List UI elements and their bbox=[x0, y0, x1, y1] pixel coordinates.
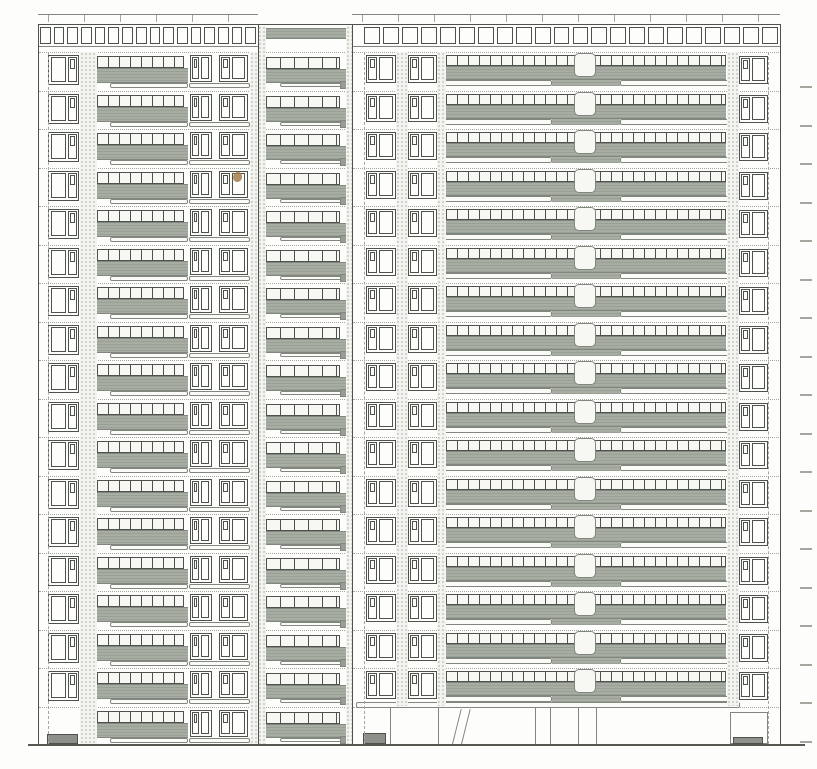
balcony-slab bbox=[620, 465, 737, 471]
window-casement-pane bbox=[194, 59, 197, 68]
core-pier bbox=[574, 169, 596, 193]
balcony-slab bbox=[280, 237, 342, 241]
floor-line bbox=[259, 360, 351, 361]
parapet-panel bbox=[150, 27, 161, 44]
roof-line bbox=[38, 24, 258, 25]
floor-line bbox=[39, 591, 257, 592]
balcony-slab bbox=[443, 619, 552, 625]
window bbox=[366, 209, 396, 237]
floor-line bbox=[353, 399, 779, 400]
window-casement bbox=[368, 365, 377, 388]
balcony-railing bbox=[266, 558, 340, 570]
window bbox=[190, 402, 212, 429]
window bbox=[408, 633, 437, 661]
window-pane bbox=[201, 173, 209, 195]
window bbox=[366, 556, 396, 584]
balcony-slab bbox=[620, 234, 737, 240]
window-casement bbox=[368, 519, 377, 542]
balcony-band bbox=[97, 530, 188, 545]
window-casement bbox=[68, 288, 77, 313]
window-casement bbox=[68, 134, 77, 159]
level-tick bbox=[800, 664, 812, 666]
balcony-railing bbox=[97, 56, 184, 68]
ground-floor-mullion bbox=[535, 708, 536, 744]
window-casement bbox=[741, 636, 750, 659]
window-casement-pane bbox=[194, 521, 197, 530]
roof-tick bbox=[156, 15, 157, 22]
window-casement bbox=[410, 481, 419, 504]
window bbox=[366, 633, 396, 661]
window-casement-pane bbox=[70, 560, 75, 570]
window-pane bbox=[379, 365, 393, 388]
balcony-band bbox=[264, 570, 346, 584]
balcony-band bbox=[264, 223, 346, 237]
window-casement bbox=[192, 481, 199, 503]
window bbox=[219, 94, 248, 121]
window-casement bbox=[192, 635, 199, 657]
window-casement bbox=[368, 211, 377, 234]
window bbox=[219, 479, 248, 506]
roof-tick bbox=[578, 15, 579, 22]
window-pane bbox=[201, 481, 209, 503]
window-casement-pane bbox=[412, 367, 417, 376]
window-casement-pane bbox=[370, 560, 375, 569]
floor-line bbox=[259, 476, 351, 477]
window-casement bbox=[741, 674, 750, 697]
window-pane bbox=[379, 519, 393, 542]
window-casement bbox=[68, 673, 77, 698]
window-casement-pane bbox=[743, 137, 748, 146]
ground-floor-mullion bbox=[438, 708, 439, 744]
balcony-slab bbox=[443, 157, 552, 163]
window-pane bbox=[752, 674, 765, 697]
floor-line bbox=[259, 399, 351, 400]
window-casement bbox=[221, 211, 230, 233]
window bbox=[739, 133, 768, 161]
floor-line bbox=[259, 206, 351, 207]
window-pane bbox=[201, 96, 209, 118]
balcony-slab bbox=[189, 545, 250, 550]
window bbox=[48, 671, 79, 701]
window-pane bbox=[421, 365, 434, 388]
floor-line bbox=[39, 283, 257, 284]
balcony-slab bbox=[620, 504, 737, 510]
window-casement-pane bbox=[223, 483, 228, 492]
balcony-railing bbox=[266, 250, 340, 262]
window-casement bbox=[192, 404, 199, 426]
window-casement bbox=[368, 288, 377, 311]
canopy-stroke bbox=[452, 709, 462, 744]
window-pane bbox=[421, 558, 434, 581]
roof-tick bbox=[192, 15, 193, 22]
window-casement-pane bbox=[194, 290, 197, 299]
window-pane bbox=[201, 134, 209, 156]
balcony-slab bbox=[620, 273, 737, 279]
floor-line bbox=[259, 322, 351, 323]
balcony-slab bbox=[110, 507, 188, 512]
parapet-panel bbox=[629, 27, 645, 44]
balcony-band bbox=[97, 107, 188, 122]
window-casement-pane bbox=[743, 676, 748, 685]
balcony-railing bbox=[266, 211, 340, 223]
window bbox=[48, 55, 79, 85]
window-pane bbox=[51, 404, 66, 429]
floor-line bbox=[353, 630, 779, 631]
balcony-slab bbox=[443, 196, 552, 202]
balcony-band-center bbox=[552, 80, 620, 86]
window-casement bbox=[741, 58, 750, 81]
window bbox=[408, 248, 437, 276]
window-pane bbox=[752, 135, 765, 158]
parapet-panel bbox=[535, 27, 551, 44]
floor-line bbox=[39, 91, 257, 92]
window bbox=[48, 248, 79, 278]
balcony-slab bbox=[443, 504, 552, 510]
window-casement-pane bbox=[194, 213, 197, 222]
entrance-patch bbox=[363, 733, 386, 744]
balcony-slab bbox=[110, 160, 188, 165]
window-casement bbox=[68, 404, 77, 429]
window-pane bbox=[51, 481, 66, 506]
window-casement bbox=[410, 134, 419, 157]
level-tick bbox=[800, 548, 812, 550]
core-pier bbox=[574, 361, 596, 385]
window-casement-pane bbox=[412, 406, 417, 415]
balcony-slab bbox=[189, 699, 250, 704]
balcony-railing bbox=[97, 403, 184, 415]
window-casement-pane bbox=[743, 561, 748, 570]
window-casement bbox=[192, 673, 199, 695]
balcony-slab bbox=[280, 430, 342, 434]
window bbox=[739, 210, 768, 238]
balcony-band-center bbox=[552, 273, 620, 279]
balcony-band bbox=[97, 184, 188, 199]
window-casement bbox=[68, 558, 77, 583]
window bbox=[190, 286, 212, 313]
floor-line bbox=[259, 630, 351, 631]
window-casement-pane bbox=[194, 560, 197, 569]
window-pane bbox=[51, 596, 66, 621]
window-pane bbox=[379, 96, 393, 119]
parapet-panel bbox=[402, 27, 418, 44]
floor-line bbox=[259, 553, 351, 554]
window-casement-pane bbox=[194, 406, 197, 415]
window-casement-pane bbox=[70, 98, 75, 108]
window-casement-pane bbox=[70, 175, 75, 185]
window-casement-pane bbox=[412, 213, 417, 222]
window-casement-pane bbox=[370, 213, 375, 222]
window-casement-pane bbox=[370, 598, 375, 607]
ground-line bbox=[28, 744, 805, 746]
balcony-railing bbox=[97, 634, 184, 646]
window-casement bbox=[68, 365, 77, 390]
stain-speck bbox=[233, 172, 242, 182]
balcony-slab bbox=[280, 661, 342, 665]
balcony-band-center bbox=[552, 196, 620, 202]
balcony-slab bbox=[443, 427, 552, 433]
window-casement-pane bbox=[743, 176, 748, 185]
floor-line bbox=[259, 129, 351, 130]
window-casement bbox=[368, 134, 377, 157]
level-tick bbox=[800, 510, 812, 512]
balcony-band bbox=[264, 339, 346, 353]
window bbox=[366, 132, 396, 160]
floor-line bbox=[353, 245, 779, 246]
balcony-band-center bbox=[552, 619, 620, 625]
window-casement-pane bbox=[70, 59, 75, 69]
floor-line bbox=[39, 245, 257, 246]
window-casement-pane bbox=[743, 407, 748, 416]
window-casement bbox=[741, 366, 750, 389]
balcony-slab bbox=[189, 430, 250, 435]
floor-line bbox=[259, 668, 351, 669]
block-edge-line bbox=[258, 24, 259, 744]
window-casement bbox=[221, 173, 230, 195]
window-casement bbox=[368, 173, 377, 196]
window-pane bbox=[232, 250, 245, 272]
balcony-railing bbox=[266, 288, 340, 300]
floor-line bbox=[353, 283, 779, 284]
balcony-slab bbox=[110, 699, 188, 704]
balcony-slab bbox=[620, 311, 737, 317]
window-casement-pane bbox=[223, 367, 228, 376]
window-pane bbox=[752, 58, 765, 81]
balcony-railing bbox=[266, 635, 340, 647]
window-pane bbox=[752, 597, 765, 620]
block-edge-line bbox=[352, 24, 353, 744]
balcony-band bbox=[97, 376, 188, 391]
window bbox=[190, 55, 212, 82]
window-casement bbox=[741, 135, 750, 158]
balcony-slab bbox=[443, 465, 552, 471]
balcony-band-center bbox=[552, 504, 620, 510]
balcony-railing bbox=[266, 173, 340, 185]
window-casement bbox=[410, 558, 419, 581]
balcony-slab bbox=[189, 276, 250, 281]
balcony-railing bbox=[97, 518, 184, 530]
level-tick bbox=[800, 202, 812, 204]
window bbox=[408, 556, 437, 584]
window bbox=[408, 171, 437, 199]
balcony-railing bbox=[266, 134, 340, 146]
window-casement bbox=[192, 442, 199, 464]
core-pier bbox=[574, 477, 596, 501]
balcony-slab bbox=[280, 122, 342, 126]
window bbox=[190, 94, 212, 121]
window bbox=[408, 209, 437, 237]
balcony-band bbox=[97, 453, 188, 468]
balcony-slab bbox=[443, 658, 552, 664]
window-casement-pane bbox=[743, 253, 748, 262]
window-casement-pane bbox=[370, 98, 375, 107]
window-casement bbox=[741, 443, 750, 466]
floor-line bbox=[39, 553, 257, 554]
parapet-panel bbox=[81, 27, 92, 44]
tower-parapet-band bbox=[258, 28, 348, 39]
window-pane bbox=[232, 519, 245, 541]
window bbox=[190, 633, 212, 660]
window-casement-pane bbox=[412, 329, 417, 338]
balcony-slab bbox=[280, 83, 342, 87]
balcony-slab bbox=[110, 353, 188, 358]
window-pane bbox=[51, 173, 66, 198]
roof-tick bbox=[686, 15, 687, 22]
parapet-base-line bbox=[352, 46, 780, 47]
window-pane bbox=[51, 635, 66, 660]
window-pane bbox=[421, 519, 434, 542]
balcony-slab bbox=[189, 584, 250, 589]
window-pane bbox=[421, 173, 434, 196]
window-casement bbox=[368, 327, 377, 350]
window bbox=[739, 287, 768, 315]
window-casement bbox=[221, 712, 230, 734]
balcony-railing bbox=[266, 404, 340, 416]
wall-pier bbox=[437, 52, 446, 706]
roof-tick bbox=[722, 15, 723, 22]
floor-line bbox=[259, 707, 351, 708]
window-casement-pane bbox=[743, 484, 748, 493]
wall-pier bbox=[727, 52, 739, 706]
level-tick bbox=[800, 702, 812, 704]
balcony-slab bbox=[110, 276, 188, 281]
window-casement-pane bbox=[370, 59, 375, 68]
window-casement bbox=[192, 327, 199, 349]
roof-line bbox=[352, 14, 780, 15]
balcony-slab bbox=[280, 199, 342, 203]
window-pane bbox=[379, 481, 393, 504]
parapet-panel bbox=[364, 27, 380, 44]
parapet-panel bbox=[95, 27, 106, 44]
roof-tick bbox=[470, 15, 471, 22]
window bbox=[190, 671, 212, 698]
window bbox=[219, 363, 248, 390]
window-pane bbox=[232, 365, 245, 387]
window-pane bbox=[232, 558, 245, 580]
window-casement-pane bbox=[70, 252, 75, 262]
roof-tick bbox=[506, 15, 507, 22]
window-casement bbox=[368, 250, 377, 273]
window-casement-pane bbox=[70, 213, 75, 223]
window-pane bbox=[201, 442, 209, 464]
window bbox=[48, 325, 79, 355]
balcony-band bbox=[97, 299, 188, 314]
window bbox=[408, 325, 437, 353]
balcony-band bbox=[97, 684, 188, 699]
core-pier bbox=[574, 246, 596, 270]
balcony-slab bbox=[189, 199, 250, 204]
window bbox=[366, 363, 396, 391]
window-pane bbox=[201, 558, 209, 580]
edge-dash-line bbox=[768, 52, 769, 744]
roof-tick bbox=[362, 15, 363, 22]
elevation-drawing bbox=[0, 0, 817, 769]
balcony-band bbox=[97, 723, 188, 738]
window-pane bbox=[421, 635, 434, 658]
balcony-slab bbox=[620, 542, 737, 548]
window-pane bbox=[232, 635, 245, 657]
balcony-slab bbox=[280, 699, 342, 703]
window-casement bbox=[221, 96, 230, 118]
window bbox=[190, 517, 212, 544]
window bbox=[219, 440, 248, 467]
balcony-band bbox=[264, 647, 346, 661]
parapet-panel bbox=[516, 27, 532, 44]
window-casement-pane bbox=[194, 367, 197, 376]
balcony-slab bbox=[280, 622, 342, 626]
window-casement-pane bbox=[223, 59, 228, 68]
window-casement bbox=[68, 442, 77, 467]
balcony-band bbox=[97, 569, 188, 584]
window-pane bbox=[421, 481, 434, 504]
window-casement-pane bbox=[194, 637, 197, 646]
level-tick bbox=[800, 86, 812, 88]
window bbox=[366, 94, 396, 122]
balcony-band bbox=[97, 607, 188, 622]
floor-line bbox=[353, 206, 779, 207]
balcony-slab bbox=[189, 661, 250, 666]
balcony-band bbox=[97, 68, 188, 83]
balcony-railing bbox=[97, 672, 184, 684]
window-casement bbox=[410, 673, 419, 696]
window-casement bbox=[368, 481, 377, 504]
balcony-railing bbox=[97, 480, 184, 492]
window-casement-pane bbox=[223, 714, 228, 723]
balcony-band bbox=[264, 531, 346, 545]
window-pane bbox=[232, 712, 245, 734]
window-casement bbox=[741, 520, 750, 543]
floor-line bbox=[39, 630, 257, 631]
core-pier bbox=[574, 284, 596, 308]
window-pane bbox=[232, 288, 245, 310]
window bbox=[48, 633, 79, 663]
window bbox=[739, 441, 768, 469]
window-casement bbox=[192, 57, 199, 79]
window-casement bbox=[68, 96, 77, 121]
window-pane bbox=[201, 635, 209, 657]
balcony-slab bbox=[189, 83, 250, 88]
window bbox=[48, 363, 79, 393]
window-casement bbox=[221, 481, 230, 503]
window bbox=[190, 209, 212, 236]
balcony-railing bbox=[97, 249, 184, 261]
balcony-railing bbox=[97, 133, 184, 145]
window-casement-pane bbox=[70, 136, 75, 146]
balcony-railing bbox=[97, 172, 184, 184]
window-pane bbox=[201, 596, 209, 618]
balcony-slab bbox=[110, 199, 188, 204]
window-casement bbox=[368, 558, 377, 581]
window-casement-pane bbox=[223, 675, 228, 684]
window-casement bbox=[410, 365, 419, 388]
window-casement-pane bbox=[743, 368, 748, 377]
window bbox=[739, 326, 768, 354]
floor-line bbox=[39, 52, 257, 53]
window-casement bbox=[741, 212, 750, 235]
balcony-slab bbox=[280, 545, 342, 549]
balcony-slab bbox=[443, 80, 552, 86]
window-casement-pane bbox=[194, 98, 197, 107]
window-pane bbox=[752, 251, 765, 274]
roof-tick bbox=[398, 15, 399, 22]
window-casement bbox=[410, 57, 419, 80]
parapet-panel bbox=[67, 27, 78, 44]
window-pane bbox=[51, 365, 66, 390]
parapet-panel bbox=[478, 27, 494, 44]
core-pier bbox=[574, 554, 596, 578]
balcony-band bbox=[264, 724, 346, 738]
balcony-slab bbox=[110, 468, 188, 473]
window-casement bbox=[68, 250, 77, 275]
